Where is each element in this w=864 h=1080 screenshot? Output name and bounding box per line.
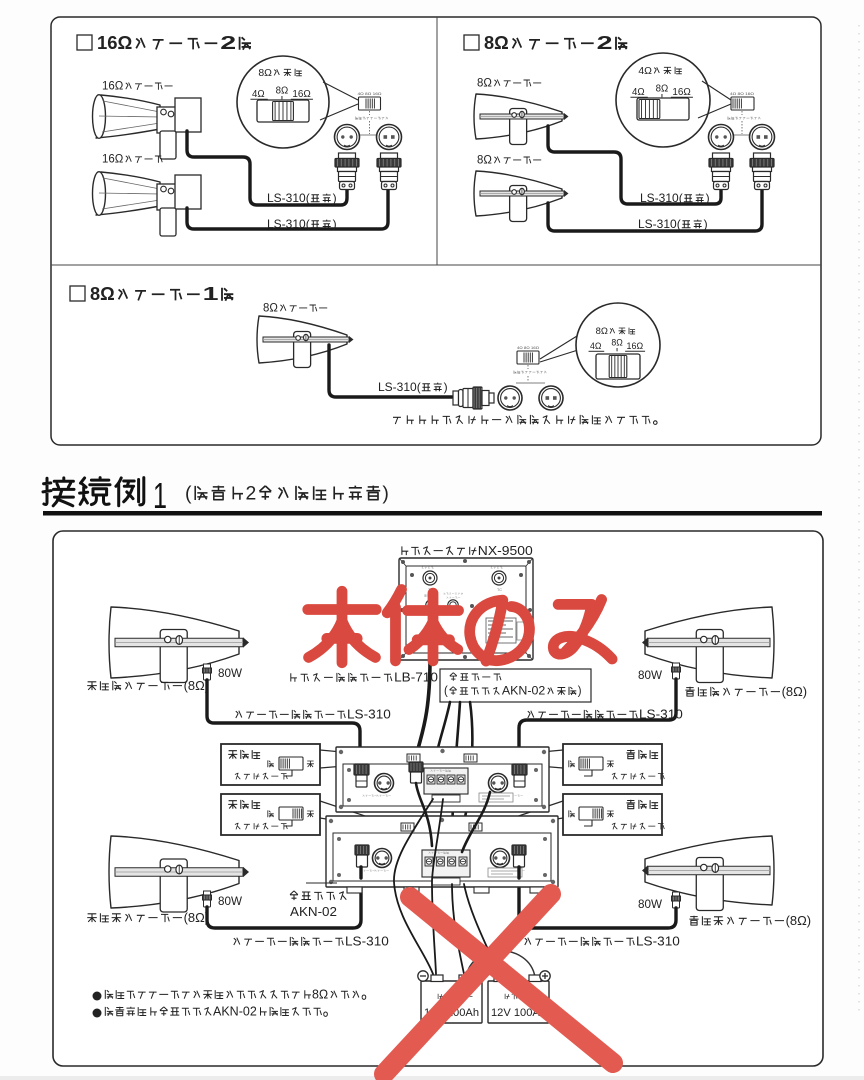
svg-text:16Ω: 16Ω [102,81,124,93]
svg-text:8Ω: 8Ω [90,284,115,304]
svg-text:4Ω 8Ω 16Ω: 4Ω 8Ω 16Ω [517,345,539,350]
svg-text:LS-310: LS-310 [636,935,680,949]
svg-text:4Ω: 4Ω [590,341,602,351]
svg-text:(: ( [185,482,192,504]
svg-text:LS-310(: LS-310( [638,217,681,231]
svg-text:): ) [444,380,448,394]
svg-text:80W: 80W [638,668,663,682]
svg-text:8Ω: 8Ω [477,155,492,167]
svg-text:8Ω: 8Ω [188,678,205,693]
svg-text:2: 2 [220,33,236,53]
svg-text:2: 2 [245,482,256,504]
svg-text:LB-710: LB-710 [394,671,438,685]
svg-text:): ) [333,191,337,205]
svg-text:80W: 80W [218,894,243,908]
svg-text:): ) [578,686,582,698]
svg-text:8Ω: 8Ω [263,303,278,315]
svg-text:TC: TC [497,588,502,592]
svg-text:8Ω: 8Ω [312,988,328,1002]
svg-text:NX-9500: NX-9500 [478,543,533,558]
svg-text:8Ω: 8Ω [484,33,509,53]
svg-text:1: 1 [153,475,167,516]
svg-text:16Ω: 16Ω [102,154,124,166]
svg-text:80W: 80W [638,897,663,911]
svg-text:LS-310(: LS-310( [378,380,421,394]
svg-text:AKN-02: AKN-02 [290,904,337,919]
svg-text:4Ω: 4Ω [252,89,265,100]
svg-text:(8Ω): (8Ω) [786,913,812,928]
svg-text:LS-310(: LS-310( [640,191,683,205]
svg-text:4Ω: 4Ω [638,65,652,77]
svg-text:): ) [382,482,389,504]
svg-text:4Ω 8Ω 16Ω: 4Ω 8Ω 16Ω [730,91,754,96]
svg-text:(8Ω): (8Ω) [184,910,210,925]
svg-text:LS-310(: LS-310( [267,191,310,205]
svg-text:): ) [333,217,337,231]
svg-text:8Ω: 8Ω [477,78,492,90]
svg-text:): ) [706,191,710,205]
svg-text:AKN-02: AKN-02 [502,686,545,698]
svg-text:8Ω: 8Ω [258,67,272,79]
svg-text:8Ω: 8Ω [656,84,669,95]
svg-text:8Ω: 8Ω [596,326,608,337]
svg-text:LS-310(: LS-310( [267,217,310,231]
svg-text:LS-310: LS-310 [345,935,389,949]
svg-text:16Ω: 16Ω [627,341,644,351]
svg-text:): ) [704,217,708,231]
svg-text:16Ω: 16Ω [672,87,690,98]
svg-text:4Ω: 4Ω [632,87,645,98]
svg-text:LS-310: LS-310 [639,708,683,722]
svg-text:4Ω 8Ω 16Ω: 4Ω 8Ω 16Ω [358,91,382,96]
svg-text:AKN-02: AKN-02 [213,1005,257,1019]
svg-text:1: 1 [203,284,219,304]
svg-text:16Ω: 16Ω [97,33,132,53]
svg-text:2: 2 [597,33,613,53]
svg-text:(: ( [444,686,448,698]
svg-text:16Ω: 16Ω [292,89,310,100]
svg-text:LS-310: LS-310 [347,708,391,722]
svg-text:8Ω: 8Ω [276,86,289,97]
svg-text:(8Ω): (8Ω) [782,684,808,699]
svg-text:80W: 80W [218,666,243,680]
svg-text:8Ω: 8Ω [611,338,623,348]
